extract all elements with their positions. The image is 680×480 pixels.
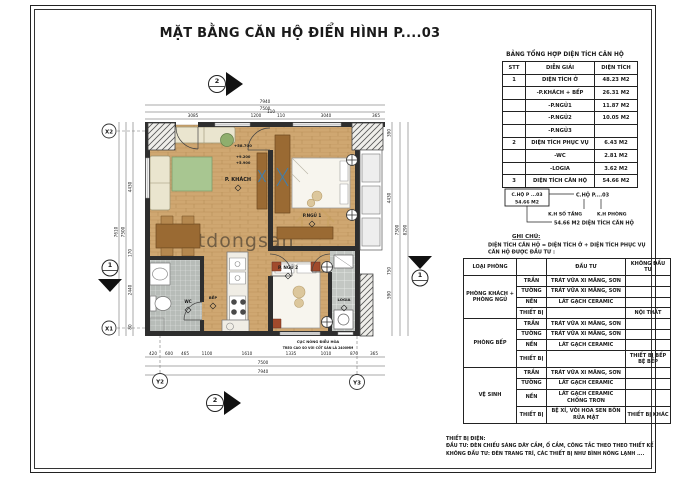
cell: 48.23 M2 [595,74,638,87]
cell: DIỆN TÍCH Ở [526,74,595,87]
footer-note: THIẾT BỊ ĐIỆN: ĐẦU TƯ: ĐÈN CHIẾU SÁNG DÂ… [446,436,660,458]
dim: 3040 [321,113,332,118]
dim: 170 [128,249,133,257]
grid-label-x2: X2 [105,129,113,135]
cell: TRẦN [517,318,547,329]
area-table: STT DIỄN GIẢI DIỆN TÍCH 1DIỆN TÍCH Ở48.2… [502,61,638,188]
cell: THIẾT BỊ BẾP BỆ BẾP [626,351,671,368]
cabinet-bed1 [277,227,333,239]
cell [626,329,671,340]
header-invest: ĐẦU TƯ [547,259,626,276]
cell [626,297,671,308]
cell: LÁT GẠCH CERAMIC [547,297,626,308]
section-left-label: 1 [108,261,113,269]
dim: 2440 [128,284,133,295]
cell: TRÁT VỮA XI MĂNG, SƠN [547,368,626,379]
room-label-khach: P. KHÁCH [225,176,251,183]
dim: 465 [181,351,189,356]
key-note-title: GHI CHÚ: [512,233,540,240]
cell: 54.66 M2 [595,175,638,188]
table-row: -P.NGỦ111.87 M2 [503,99,638,112]
table-row: 1DIỆN TÍCH Ở48.23 M2 [503,74,638,87]
cell: TRÁT VỮA XI MĂNG, SƠN [547,276,626,287]
cell: 1 [503,74,526,87]
dim: 590 [387,291,392,299]
key-box-line2: 54.66 M2 [515,200,539,206]
cell: TƯỜNG [517,378,547,389]
table-row: -LOGIA3.62 M2 [503,162,638,175]
dim: 4430 [387,192,392,203]
room-label-ngu2: P. NGỦ 2 [278,265,298,270]
key-floor-label: K.H SỐ TẦNG [548,209,582,218]
dim: 1200 [251,113,262,118]
service-shaft [360,150,382,250]
table-row: -P.KHÁCH + BẾP26.31 M2 [503,87,638,100]
section-right-label: 1 [418,271,423,279]
cell: -LOGIA [526,162,595,175]
cell: NỘI THẤT [626,308,671,319]
dim: 7500 [121,226,126,237]
table-row: 3DIỆN TÍCH CĂN HỘ54.66 M2 [503,175,638,188]
room-group: PHÒNG KHÁCH + PHÒNG NGỦ [464,276,517,319]
dim: 1610 [242,351,253,356]
table-row: PHÒNG KHÁCH + PHÒNG NGỦ TRẦNTRÁT VỮA XI … [464,276,671,287]
key-ref-label: C.HỘ P....03 [576,192,610,199]
key-diagram: C.HỘ P ...03 54.66 M2 C.HỘ P....03 K.H S… [488,189,646,256]
header-stt: STT [503,62,526,75]
header-desc: DIỄN GIẢI [526,62,595,75]
cell [626,340,671,351]
dim: 7610 [114,226,119,237]
cell: NỀN [517,297,547,308]
key-box-line1: C.HỘ P ...03 [511,191,542,198]
dim: 110 [277,113,285,118]
cell: TRÁT VỮA XI MĂNG, SƠN [547,286,626,297]
room-group: PHÒNG BẾP [464,318,517,367]
footer-line-1: THIẾT BỊ ĐIỆN: [446,436,660,443]
level-2: +9.200 [236,155,251,159]
room-group: VỆ SINH [464,368,517,424]
dim: 3085 [188,113,199,118]
footer-line-3: KHÔNG ĐẦU TƯ: ĐÈN TRANG TRÍ, CÁC THIẾT B… [446,451,660,458]
cell [503,150,526,163]
dim: 80 [128,324,133,330]
cell: TRẦN [517,276,547,287]
dim: 7940 [258,369,269,374]
header-blank [517,259,547,276]
cell: NỀN [517,340,547,351]
cell: -P.NGỦ3 [526,124,595,137]
cell: TRÁT VỮA XI MĂNG, SƠN [547,329,626,340]
dim: 7500 [260,106,271,111]
room-label-bep: BẾP [209,294,217,300]
cell: THIẾT BỊ [517,406,547,423]
invest-table: LOẠI PHÒNG ĐẦU TƯ KHÔNG ĐẦU TƯ PHÒNG KHÁ… [463,258,671,424]
dim: 7940 [260,99,271,104]
dim: 390 [387,129,392,137]
plant [221,134,234,147]
table-row: VỆ SINH TRẦNTRÁT VỮA XI MĂNG, SƠN [464,368,671,379]
dim: 600 [165,351,173,356]
cell [626,286,671,297]
cell: 3 [503,175,526,188]
cell: -P.NGỦ2 [526,112,595,125]
cell: BỆ XÍ, VÒI HOA SEN BỒN RỬA MẶT [547,406,626,423]
plan-note-2: TREO CAO SO VỚI CỐT SÀN LÀ 2400MM [283,345,354,350]
cell: THIẾT BỊ KHÁC [626,406,671,423]
table-row: -WC2.81 M2 [503,150,638,163]
header-room-type: LOẠI PHÒNG [464,259,517,276]
table-row: 2DIỆN TÍCH PHỤC VỤ6.43 M2 [503,137,638,150]
footer-line-2: ĐẦU TƯ: ĐÈN CHIẾU SÁNG DÂY CẮM, Ổ CẮM, C… [446,443,660,450]
dim: 7500 [258,360,269,365]
dim: 4430 [128,181,133,192]
cell: 2.81 M2 [595,150,638,163]
cell: -P.NGỦ1 [526,99,595,112]
cell: -WC [526,150,595,163]
cell: LÁT GẠCH CERAMIC [547,378,626,389]
cell [626,318,671,329]
cell [626,378,671,389]
cell: THIẾT BỊ [517,308,547,319]
cell: TRẦN [517,368,547,379]
dim: 1100 [202,351,213,356]
dim: 7500 [395,224,400,235]
cell: TƯỜNG [517,329,547,340]
area-table-title: BẢNG TỔNG HỢP DIỆN TÍCH CĂN HỘ [490,52,640,58]
dim: 750 [387,267,392,275]
key-room-label: K.H PHÒNG [597,211,627,218]
wardrobe-bed1 [275,135,290,213]
grid-label-y2: Y2 [155,379,164,385]
cell [503,112,526,125]
cell: TRÁT VỮA XI MĂNG, SƠN [547,318,626,329]
header-no-invest: KHÔNG ĐẦU TƯ [626,259,671,276]
table-row: PHÒNG BẾP TRẦNTRÁT VỮA XI MĂNG, SƠN [464,318,671,329]
section-top-label: 2 [215,77,220,85]
dim: 365 [370,351,378,356]
cell: 3.62 M2 [595,162,638,175]
cell [547,308,626,319]
cell: 2 [503,137,526,150]
cell: TƯỜNG [517,286,547,297]
wc-toilet [155,297,171,311]
cell [595,124,638,137]
table-header-row: STT DIỄN GIẢI DIỆN TÍCH [503,62,638,75]
dim: 420 [149,351,157,356]
cell [547,351,626,368]
cell: 6.43 M2 [595,137,638,150]
plan-note-1: CỤC NÓNG ĐIỀU HÒA [297,339,340,344]
room-label-logia: LOGIA [338,297,351,302]
dim: 365 [372,113,380,118]
cell [503,162,526,175]
level-1: +58.700 [234,143,252,148]
coffee-table [172,157,212,191]
section-bottom-label: 2 [213,396,218,404]
key-area-label: 54.66 M2 DIỆN TÍCH CĂN HỘ [554,219,634,227]
dim: 1335 [286,351,297,356]
cell [503,99,526,112]
dining-table [156,224,200,248]
cell: -P.KHÁCH + BẾP [526,87,595,100]
wc-sink [153,268,168,280]
cell: 10.05 M2 [595,112,638,125]
washing-machine [334,310,353,329]
cell: DIỆN TÍCH PHỤC VỤ [526,137,595,150]
cell: LÁT GẠCH CERAMIC [547,340,626,351]
cell: 26.31 M2 [595,87,638,100]
cell: 11.87 M2 [595,99,638,112]
room-label-wc: WC [184,299,191,304]
cell [503,124,526,137]
cell [626,389,671,406]
key-note-line1: DIỆN TÍCH CĂN HỘ = DIỆN TÍCH Ở + DIỆN TÍ… [488,241,646,249]
dim: 8290 [403,224,408,235]
level-3: +5.900 [236,161,251,165]
cell [626,276,671,287]
room-label-ngu1: P.NGỦ 1 [303,213,322,218]
table-header-row: LOẠI PHÒNG ĐẦU TƯ KHÔNG ĐẦU TƯ [464,259,671,276]
cell: DIỆN TÍCH CĂN HỘ [526,175,595,188]
dim: 1010 [321,351,332,356]
cell: NỀN [517,389,547,406]
cell [503,87,526,100]
table-row: -P.NGỦ3 [503,124,638,137]
cell: LÁT GẠCH CERAMIC CHỐNG TRƠN [547,389,626,406]
table-row: -P.NGỦ210.05 M2 [503,112,638,125]
cell: THIẾT BỊ [517,351,547,368]
grid-label-y3: Y3 [352,380,361,386]
header-area: DIỆN TÍCH [595,62,638,75]
grid-label-x1: X1 [105,326,113,332]
cell [626,368,671,379]
